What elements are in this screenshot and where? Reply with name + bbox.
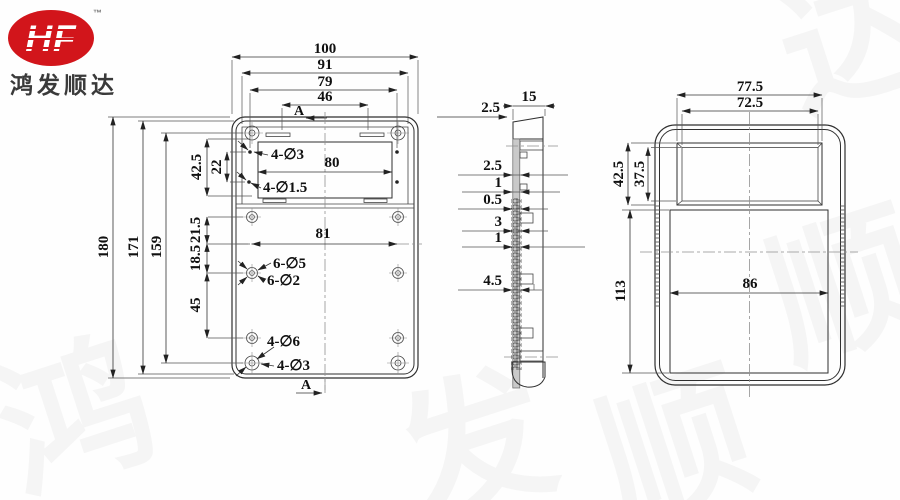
dim-42-5-back: 42.5	[611, 161, 627, 187]
logo: HF ™ 鸿发顺达	[8, 8, 118, 98]
back-left-ribs	[656, 205, 660, 307]
dim-42-5: 42.5	[189, 154, 205, 180]
label-top-holes: 4-∅3	[271, 147, 304, 163]
front-inner-dimensions: 80 81	[252, 155, 397, 244]
section-label-bottom: A	[301, 378, 312, 393]
side-top-band	[520, 141, 543, 150]
dim-113: 113	[613, 280, 629, 302]
back-right-ribs	[841, 205, 845, 307]
side-view: 15 2.5 2.5 1 0.5 3 1 4.5	[437, 89, 585, 388]
dim-100: 100	[314, 41, 337, 57]
dim-79: 79	[318, 74, 333, 90]
company-name: 鸿发顺达	[10, 72, 118, 98]
dim-37-5: 37.5	[632, 161, 648, 187]
side-top-section	[513, 117, 543, 139]
dim-80: 80	[325, 155, 340, 171]
dim-4-5: 4.5	[483, 273, 502, 289]
side-bosses	[520, 152, 533, 338]
label-mid-holes: 6-∅5	[273, 256, 306, 272]
watermark-char: 鸿	[0, 314, 173, 500]
dim-15: 15	[522, 89, 537, 105]
dim-45: 45	[188, 298, 204, 313]
front-top-dimensions: 100 91 79 46	[232, 41, 418, 148]
dim-91: 91	[318, 57, 333, 73]
watermark-char: 顺	[578, 344, 773, 500]
dim-180: 180	[96, 236, 112, 259]
dim-46: 46	[318, 89, 334, 105]
section-label-top: A	[294, 104, 305, 119]
drawing-svg: 鸿 发 顺 达 顺 HF ™ 鸿发顺达	[0, 0, 900, 500]
dim-lip-2-5: 2.5	[481, 100, 500, 116]
label-bottom-small-holes: 4-∅3	[277, 358, 310, 374]
front-view: 100 91 79 46 A A 180 171 159	[96, 41, 422, 393]
logo-trademark: ™	[93, 8, 102, 18]
dim-21-5: 21.5	[188, 217, 204, 243]
dim-159: 159	[149, 236, 165, 259]
side-lip-dimension: 2.5	[437, 100, 507, 117]
dim-3: 3	[495, 214, 503, 230]
dim-22: 22	[209, 160, 225, 175]
label-top-small-holes: 4-∅1.5	[263, 180, 307, 196]
technical-drawing-page: 鸿 发 顺 达 顺 HF ™ 鸿发顺达	[0, 0, 900, 500]
dim-86: 86	[743, 276, 759, 292]
small-holes	[247, 150, 399, 184]
side-width-dimension: 15	[503, 89, 555, 120]
dim-2-5: 2.5	[483, 158, 502, 174]
watermark-char: 达	[758, 0, 900, 140]
dim-1b: 1	[495, 230, 503, 246]
back-window	[677, 143, 822, 205]
dim-1a: 1	[495, 175, 503, 191]
dim-171: 171	[126, 236, 142, 259]
dim-72-5: 72.5	[737, 95, 763, 111]
dim-18-5: 18.5	[188, 245, 204, 271]
watermark-char: 顺	[748, 184, 900, 390]
dim-0-5: 0.5	[483, 192, 502, 208]
dim-77-5: 77.5	[737, 79, 763, 95]
dim-81: 81	[316, 226, 331, 242]
label-mid-small-holes: 6-∅2	[267, 273, 300, 289]
label-bottom-holes: 4-∅6	[267, 334, 301, 350]
